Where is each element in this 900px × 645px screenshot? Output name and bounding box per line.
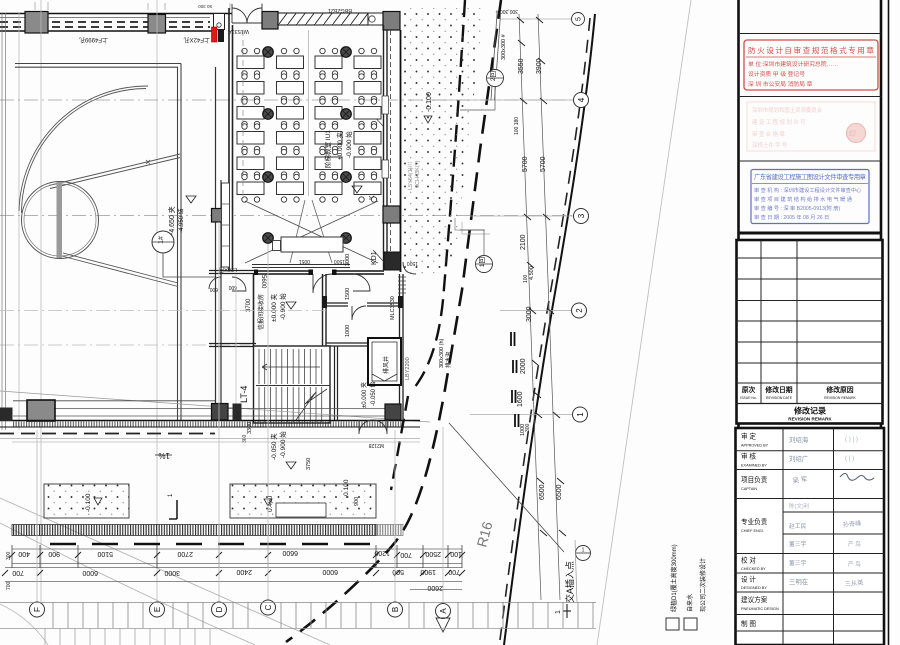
svg-text:2700: 2700	[177, 550, 193, 557]
svg-text:REVISION REMARK: REVISION REMARK	[824, 396, 856, 400]
svg-text:CHIEF ENGI.: CHIEF ENGI.	[741, 529, 764, 533]
svg-text:审 查 编 号 : 深 审 B2005-0913(附 册): 审 查 编 号 : 深 审 B2005-0913(附 册)	[754, 204, 840, 212]
svg-text:2000: 2000	[520, 358, 527, 374]
svg-text:3550: 3550	[518, 58, 525, 74]
svg-text:F: F	[33, 607, 42, 612]
svg-text:绿植D1(覆土高度300mm): 绿植D1(覆土高度300mm)	[670, 544, 678, 612]
svg-text:5: 5	[576, 17, 583, 21]
svg-text:BBGZb21: BBGZb21	[328, 7, 352, 13]
svg-text:-4.650 夹: -4.650 夹	[167, 206, 176, 235]
svg-text:3: 3	[577, 213, 586, 218]
svg-text:排水沟: 排水沟	[444, 351, 452, 368]
svg-text:深圳市规划和国土资源委员会: 深圳市规划和国土资源委员会	[752, 106, 823, 114]
svg-text:三明在: 三明在	[789, 577, 808, 586]
svg-text:5700: 5700	[540, 156, 547, 172]
svg-text:原次: 原次	[742, 385, 756, 394]
svg-text:上F42X孔: 上F42X孔	[184, 36, 210, 44]
svg-text:0051: 0051	[299, 258, 310, 264]
svg-text:±0.000 夹: ±0.000 夹	[335, 131, 344, 160]
svg-text:现公司二次装修设计: 现公司二次装修设计	[699, 558, 707, 612]
svg-text:300,300 #: 300,300 #	[496, 8, 518, 14]
svg-text:信报间接收房: 信报间接收房	[257, 294, 265, 330]
svg-text:APPROVED BY: APPROVED BY	[741, 444, 769, 448]
svg-text:LT-4: LT-4	[239, 386, 249, 403]
svg-text:-0.050 夹: -0.050 夹	[269, 433, 278, 460]
svg-text:赵工民: 赵工民	[789, 522, 807, 530]
svg-text:-0.050 始: -0.050 始	[369, 381, 377, 406]
svg-text:专业负责: 专业负责	[741, 517, 768, 526]
svg-text:L20X用: L20X用	[219, 266, 237, 273]
svg-text:CAPTAIN: CAPTAIN	[741, 487, 757, 491]
svg-text:修改原因: 修改原因	[825, 385, 853, 394]
svg-text:A: A	[439, 608, 448, 614]
svg-text:修改日期: 修改日期	[764, 385, 792, 394]
svg-text:300x300 (h): 300x300 (h)	[439, 338, 445, 368]
svg-text:EXAMINED BY: EXAMINED BY	[741, 464, 767, 468]
svg-text:产 鸟: 产 鸟	[848, 560, 861, 568]
svg-text:-0.900 始: -0.900 始	[344, 131, 353, 158]
svg-text:1#: 1#	[158, 236, 165, 244]
svg-text:1500: 1500	[407, 260, 418, 266]
svg-text:L5Y64(1)川: L5Y64(1)川	[408, 162, 414, 190]
svg-text:5700: 5700	[522, 156, 529, 172]
svg-text:3700: 3700	[246, 298, 252, 312]
svg-text:校 对: 校 对	[741, 556, 756, 565]
svg-text:D: D	[215, 606, 224, 612]
svg-text:C: C	[264, 604, 273, 610]
svg-text:广东省建设工程施工图设计文件审查专用章: 广东省建设工程施工图设计文件审查专用章	[754, 172, 867, 181]
svg-text:1%: 1%	[158, 451, 170, 460]
svg-text:-0.100: -0.100	[426, 92, 433, 112]
svg-text:陈(文)利: 陈(文)利	[789, 502, 809, 510]
svg-text:三从英: 三从英	[844, 578, 863, 588]
svg-text:( ) | ): ( ) | )	[845, 436, 858, 443]
svg-text:设 计: 设 计	[741, 575, 756, 584]
svg-text:W1533A: W1533A	[228, 28, 249, 34]
svg-text:董三宇: 董三宇	[789, 559, 807, 567]
svg-text:制 图: 制 图	[741, 619, 756, 628]
svg-text:项目负责: 项目负责	[741, 475, 768, 484]
svg-text:6500: 6500	[539, 484, 546, 500]
svg-text:上F4999孔: 上F4999孔	[79, 36, 108, 44]
svg-text:-0.100: -0.100	[343, 479, 350, 498]
svg-text:1000: 1000	[345, 325, 351, 337]
svg-text:LBY2200: LBY2200	[405, 357, 411, 380]
svg-text:1500: 1500	[334, 258, 345, 264]
svg-text:建 设 工 程 规 划 许 可: 建 设 工 程 规 划 许 可	[752, 118, 806, 126]
svg-text:2100: 2100	[520, 234, 527, 250]
svg-text:2: 2	[575, 308, 584, 313]
svg-text:-0.900 始: -0.900 始	[278, 293, 287, 320]
svg-text:ISSUE No.: ISSUE No.	[740, 396, 756, 400]
svg-text:5100: 5100	[97, 550, 113, 557]
svg-text:3000: 3000	[164, 569, 180, 576]
svg-text:MLC3530: MLC3530	[390, 296, 396, 320]
svg-text:50 300: 50 300	[198, 4, 212, 9]
svg-text:E: E	[153, 607, 162, 612]
svg-text:700: 700	[400, 551, 412, 558]
svg-text:1: 1	[581, 548, 584, 554]
svg-text:6500: 6500	[556, 484, 563, 500]
svg-text:防火设计自审查规范格式专用章: 防火设计自审查规范格式专用章	[748, 45, 874, 55]
svg-text:±0.000 夹: ±0.000 夹	[360, 382, 368, 408]
svg-text:1回: 1回	[478, 257, 486, 267]
svg-text:900: 900	[48, 550, 60, 557]
svg-text:700: 700	[12, 569, 24, 576]
svg-text:产 鸟: 产 鸟	[848, 540, 861, 548]
svg-text:1: 1	[555, 610, 562, 614]
svg-text:300: 300	[6, 551, 12, 560]
svg-text:2500: 2500	[425, 550, 441, 557]
svg-text:CHECKED BY: CHECKED BY	[741, 567, 766, 571]
svg-text:900: 900	[354, 497, 360, 506]
svg-text:审 查 项 目 建 筑 结 构 给 排 水 电 气 暖: 审 查 项 目 建 筑 结 构 给 排 水 电 气 暖 通	[754, 195, 853, 203]
svg-text:DESIGNED BY: DESIGNED BY	[741, 586, 767, 590]
svg-text:2600: 2600	[427, 584, 443, 591]
svg-text:100 180: 100 180	[514, 117, 520, 135]
svg-text:排风井: 排风井	[382, 356, 390, 374]
svg-text:2回: 2回	[489, 71, 497, 81]
svg-text:100: 100	[450, 550, 462, 557]
svg-text:REVISION DATE: REVISION DATE	[766, 396, 793, 400]
svg-text:M2128: M2128	[368, 442, 384, 448]
svg-text:深规土许 字 号: 深规土许 字 号	[752, 141, 788, 149]
svg-text:董三宇: 董三宇	[789, 540, 807, 548]
svg-text:700: 700	[6, 581, 12, 590]
svg-text:B: B	[391, 607, 400, 612]
svg-text:刘绍海: 刘绍海	[789, 435, 809, 444]
svg-text:深 圳 市公安局 消防局 章: 深 圳 市公安局 消防局 章	[748, 80, 813, 88]
svg-text:100: 100	[523, 274, 529, 283]
svg-text:-0.100: -0.100	[85, 493, 92, 512]
svg-text:审 定: 审 定	[741, 432, 756, 441]
svg-text:印: 印	[849, 130, 856, 138]
svg-text:±0.000 夹: ±0.000 夹	[269, 293, 278, 322]
svg-text:400: 400	[18, 550, 30, 557]
svg-text:1: 1	[576, 412, 585, 417]
svg-text:-0.900 始: -0.900 始	[278, 431, 287, 458]
svg-text:6600: 6600	[282, 549, 298, 556]
svg-text:刘绍广: 刘绍广	[789, 454, 809, 463]
svg-text:2400: 2400	[236, 568, 252, 575]
svg-text:审 查 机 构 : 深圳市建设工程设计文件审查中心: 审 查 机 构 : 深圳市建设工程设计文件审查中心	[754, 186, 861, 194]
svg-text:600: 600	[209, 286, 218, 292]
svg-text:自来水: 自来水	[686, 594, 694, 612]
svg-text:4.500: 4.500	[529, 266, 535, 280]
svg-text:REVISION REMARK: REVISION REMARK	[788, 417, 832, 422]
svg-text:300: 300	[525, 423, 531, 432]
svg-text:修改记录: 修改记录	[793, 406, 826, 416]
svg-text:设计资质 甲 级 登记号: 设计资质 甲 级 登记号	[748, 70, 805, 78]
svg-text:单 位:深圳市建筑设计研究总院……: 单 位:深圳市建筑设计研究总院……	[748, 60, 838, 68]
svg-text:1600: 1600	[517, 391, 524, 407]
svg-text:3900: 3900	[536, 58, 543, 74]
svg-text:建议方案: 建议方案	[741, 595, 768, 604]
svg-text:300x300 #: 300x300 #	[501, 33, 507, 60]
svg-text:审 查 合 格 章: 审 查 合 格 章	[752, 130, 786, 138]
svg-text:4: 4	[577, 97, 586, 102]
svg-text:( | ): ( | )	[845, 455, 854, 462]
svg-text:6000: 6000	[82, 569, 98, 576]
svg-text:1500: 1500	[345, 288, 351, 300]
svg-text:审 核: 审 核	[741, 452, 756, 461]
svg-text:审 查 日 期 : 2005 年 08 月 26 日: 审 查 日 期 : 2005 年 08 月 26 日	[754, 213, 829, 221]
svg-text:5600: 5600	[260, 275, 266, 289]
svg-text:交A插入点: 交A插入点	[564, 561, 575, 603]
svg-text:6CH43K(?): 6CH43K(?)	[415, 160, 421, 188]
svg-text:6000: 6000	[322, 568, 338, 575]
svg-text:PNEUMATIC DESIGN: PNEUMATIC DESIGN	[741, 607, 779, 611]
svg-text:-4.950 结: -4.950 结	[177, 208, 185, 233]
svg-text:3750: 3750	[306, 458, 312, 470]
svg-text:阶梯教室 IU1: 阶梯教室 IU1	[323, 130, 332, 168]
